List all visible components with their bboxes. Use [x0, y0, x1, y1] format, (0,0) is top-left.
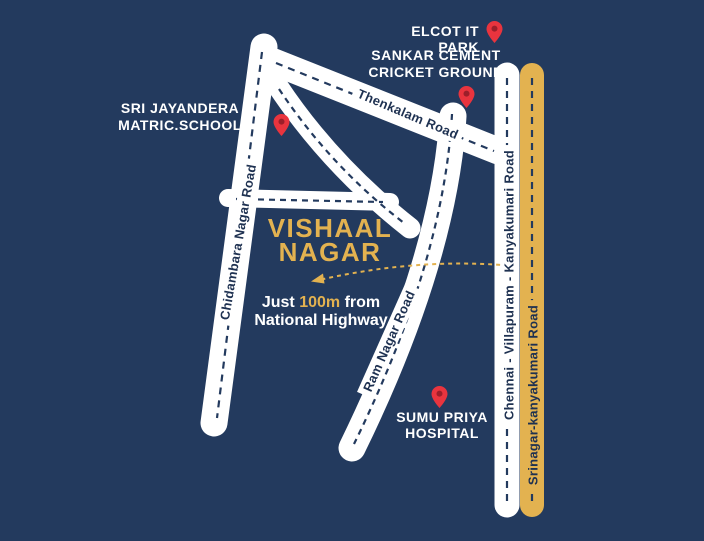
- landmark-line: HOSPITAL: [362, 426, 522, 442]
- matric-school-pin: [273, 114, 290, 136]
- distance-note-highlight: 100m: [299, 294, 340, 311]
- location-map: ELCOT IT PARK SANKAR CEMENT CRICKET GROU…: [0, 0, 704, 541]
- title-line: NAGAR: [240, 240, 420, 264]
- distance-note-suffix: from: [340, 294, 380, 311]
- page-title: VISHAAL NAGAR: [240, 216, 420, 264]
- hospital-pin: [431, 386, 448, 408]
- road-label-chennai-kanyakumari: Chennai - Villapuram - Kanyakumari Road: [501, 145, 518, 425]
- road-label-srinagar-kanyakumari: Srinagar-kanyakumari Road: [525, 300, 542, 490]
- landmark-line: CRICKET GROUND: [356, 64, 516, 81]
- landmark-line: SRI JAYANDERA: [100, 100, 260, 117]
- distance-note-line2: National Highway: [231, 312, 411, 330]
- landmark-line: SANKAR CEMENT: [356, 47, 516, 64]
- distance-note: Just 100m from National Highway: [231, 294, 411, 329]
- landmark-sumu-priya-hospital: SUMU PRIYA HOSPITAL: [362, 410, 522, 441]
- cricket-ground-pin: [458, 86, 475, 108]
- elcot-it-park-pin: [486, 21, 503, 43]
- landmark-sankar-cement-cricket-ground: SANKAR CEMENT CRICKET GROUND: [356, 47, 516, 80]
- landmark-line: SUMU PRIYA: [362, 410, 522, 426]
- landmark-line: MATRIC.SCHOOL: [100, 117, 260, 134]
- distance-note-prefix: Just: [262, 294, 299, 311]
- roads-graphic: [0, 0, 704, 541]
- landmark-sri-jayandera-school: SRI JAYANDERA MATRIC.SCHOOL: [100, 100, 260, 134]
